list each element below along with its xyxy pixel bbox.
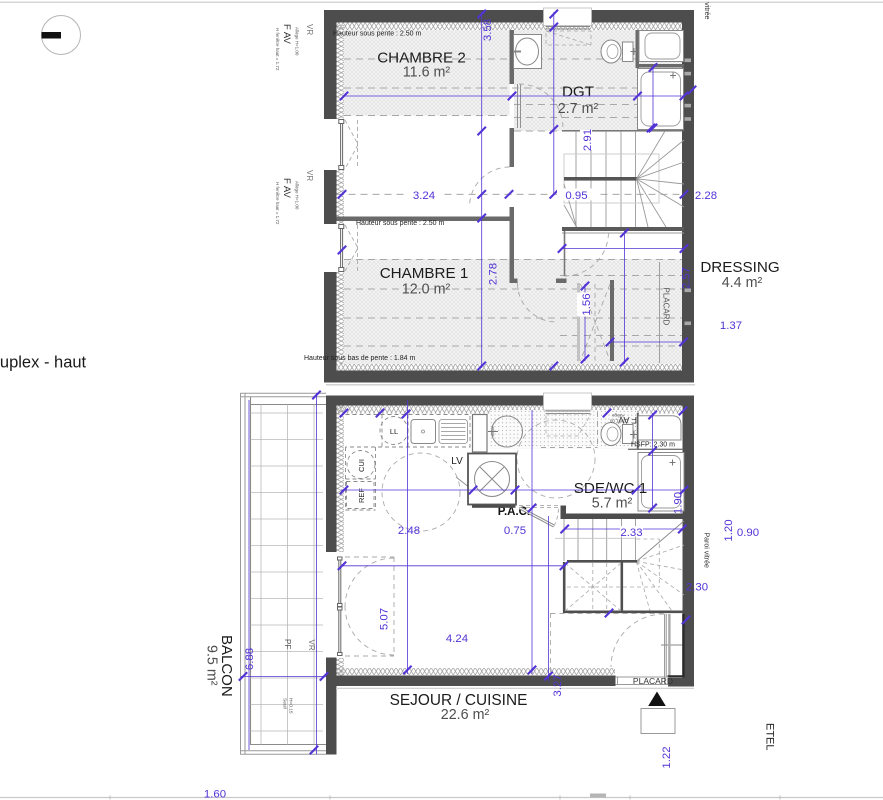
svg-text:1.37: 1.37 [720,320,742,332]
svg-text:BALCON: BALCON [218,635,235,697]
svg-text:LL: LL [390,427,398,436]
svg-text:Allège: Allège [611,413,624,418]
svg-text:6.88: 6.88 [244,648,256,670]
svg-text:H=0.15: H=0.15 [288,698,294,714]
svg-text:0.75: 0.75 [504,525,526,537]
svg-text:2.7 m²: 2.7 m² [558,101,599,117]
svg-text:1.60: 1.60 [204,789,226,800]
svg-text:F AV: F AV [281,178,292,199]
svg-text:Hauteur sous pente : 2.50 m: Hauteur sous pente : 2.50 m [333,31,421,38]
svg-text:CHAMBRE 1: CHAMBRE 1 [380,265,469,282]
svg-text:VR: VR [307,640,316,651]
svg-text:2.33: 2.33 [620,527,642,539]
svg-text:2.91: 2.91 [582,129,594,151]
svg-text:Hauteur sous pente : 2.50 m: Hauteur sous pente : 2.50 m [356,220,444,227]
svg-text:PLACARD: PLACARD [633,676,673,686]
svg-text:2.57: 2.57 [681,267,693,289]
svg-text:1.22: 1.22 [661,746,673,768]
svg-text:Seuil: Seuil [282,698,288,709]
svg-text:2.28: 2.28 [695,190,717,202]
svg-text:9.5 m²: 9.5 m² [204,645,220,686]
svg-text:2.78: 2.78 [488,263,500,285]
svg-text:F AV: F AV [281,24,292,45]
svg-text:Paroi vitrée: Paroi vitrée [703,0,710,20]
svg-text:1.56: 1.56 [581,293,593,315]
svg-text:5.07: 5.07 [379,608,391,630]
svg-text:12.0 m²: 12.0 m² [402,282,451,298]
svg-text:0.95: 0.95 [565,190,587,202]
svg-text:Paroi vitrée: Paroi vitrée [703,533,710,569]
svg-text:LV: LV [451,456,463,467]
svg-text:PF: PF [283,639,292,649]
svg-text:1.20: 1.20 [723,519,735,541]
svg-text:PLACARD: PLACARD [662,288,671,326]
svg-text:DGT: DGT [562,84,594,101]
svg-text:22.6 m²: 22.6 m² [441,707,490,723]
svg-text:3.24: 3.24 [413,190,435,202]
svg-text:VR: VR [305,24,314,35]
svg-text:HSFP: 2.30 m: HSFP: 2.30 m [631,442,675,449]
svg-text:Duplex - haut: Duplex - haut [0,354,87,372]
svg-text:CUI: CUI [357,459,366,472]
svg-text:3.58: 3.58 [482,19,494,41]
svg-text:5.7 m²: 5.7 m² [592,496,633,512]
svg-text:2.48: 2.48 [398,525,420,537]
svg-text:1.90: 1.90 [673,492,685,514]
svg-text:H fenêtre haut = 1.72: H fenêtre haut = 1.72 [275,28,280,71]
svg-text:4.4 m²: 4.4 m² [722,275,763,291]
svg-text:ETEL: ETEL [764,723,776,751]
svg-text:0.90: 0.90 [737,527,759,539]
svg-text:4.24: 4.24 [446,633,468,645]
svg-text:VR: VR [305,170,314,181]
svg-text:H=1.00: H=1.00 [609,419,624,424]
svg-text:2.30: 2.30 [686,582,708,594]
svg-text:Allège H=1.00: Allège H=1.00 [295,27,300,56]
svg-text:Allège H=1.00: Allège H=1.00 [295,181,300,210]
svg-text:Hauteur sous bas de pente : 1.: Hauteur sous bas de pente : 1.84 m [304,355,415,362]
svg-text:11.6 m²: 11.6 m² [403,65,451,81]
svg-text:DRESSING: DRESSING [700,259,779,276]
svg-text:H fenêtre haut = 1.72: H fenêtre haut = 1.72 [275,182,280,225]
svg-text:3.27: 3.27 [552,674,564,696]
